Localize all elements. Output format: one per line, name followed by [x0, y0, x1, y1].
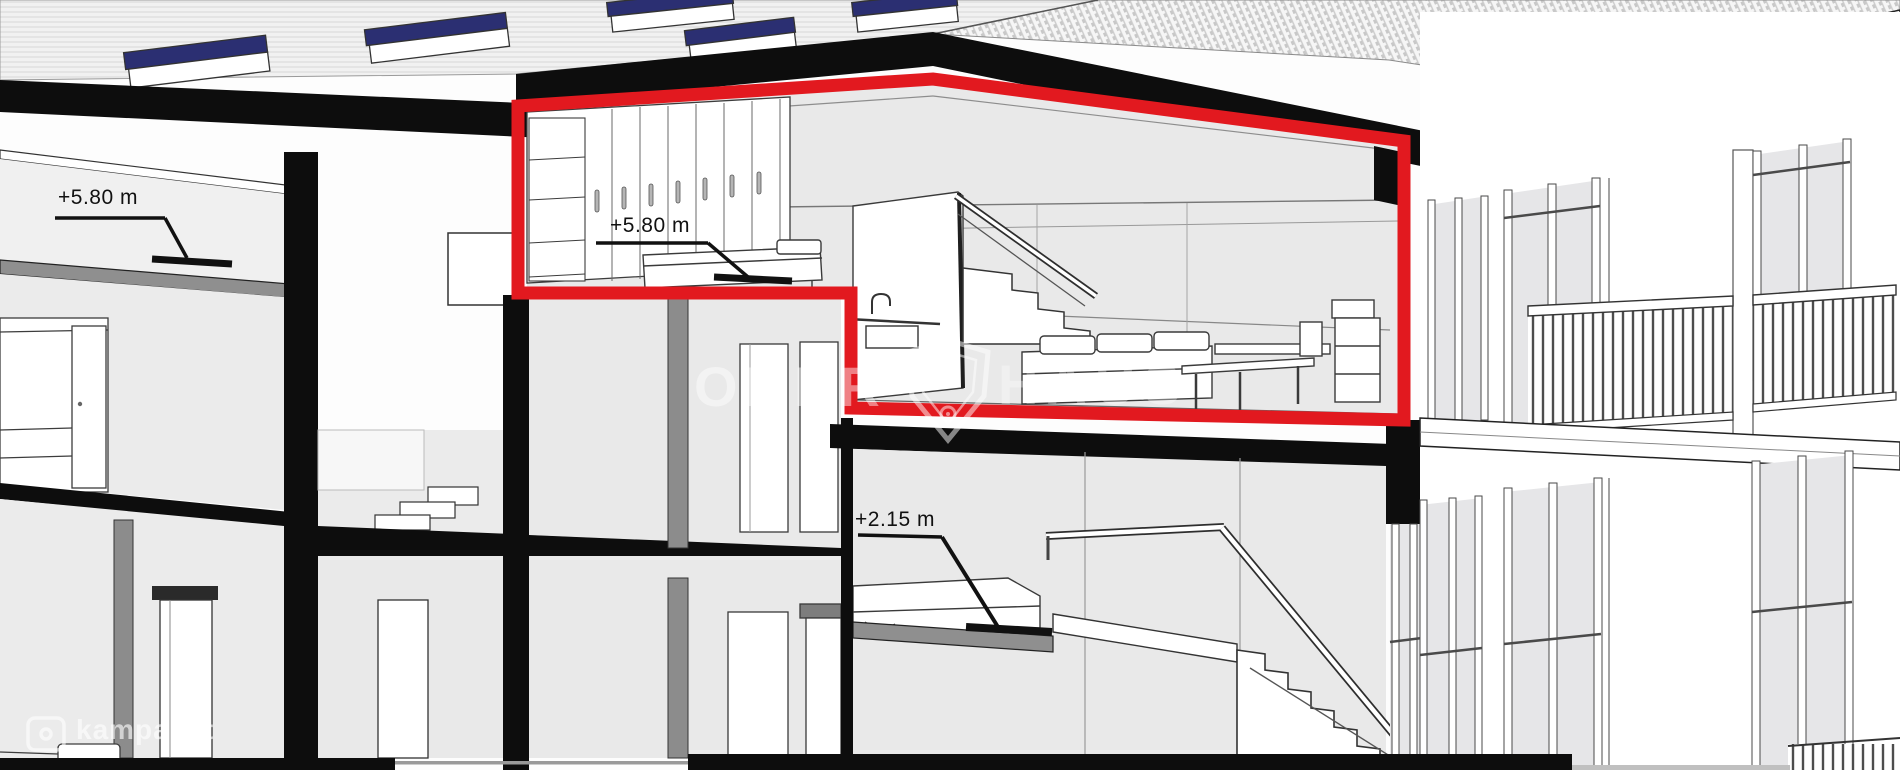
- mezzanine-right-wall: [1386, 420, 1420, 524]
- mezzanine-room: [841, 418, 1422, 770]
- gap-door-panel: [448, 233, 513, 305]
- mezzanine-right-window: [1390, 524, 1422, 770]
- lower-balcony-balusters: [1788, 744, 1900, 770]
- elevation-label-left: +5.80 m: [58, 186, 138, 210]
- watermark-agency-left: OBER: [694, 354, 888, 419]
- left-building: [0, 150, 318, 770]
- below-unit-doors-lower: [728, 604, 841, 758]
- gap-lower-door: [378, 600, 428, 758]
- right-facade: [1420, 12, 1900, 770]
- section-linework: [0, 0, 1900, 770]
- watermark-agency-right: HAUS: [998, 352, 1189, 417]
- watermark-portal: kampas.lt: [76, 714, 214, 746]
- left-section-wall: [284, 152, 318, 770]
- middle-section-wall: [503, 295, 529, 770]
- bookshelf: [529, 118, 585, 281]
- below-unit-column-lower: [668, 578, 688, 758]
- below-unit-column: [668, 298, 688, 548]
- kitchen-cabinet: [1332, 300, 1380, 402]
- elevation-label-lower: +2.15 m: [855, 508, 935, 532]
- roof-edge-band-left: [0, 80, 545, 138]
- left-wardrobe: [0, 318, 108, 492]
- building-section-drawing: +5.80 m +5.80 m +2.15 m OBER HAUS kampas…: [0, 0, 1900, 770]
- elevation-label-unit: +5.80 m: [610, 214, 690, 238]
- mezzanine-left-wall: [841, 418, 853, 770]
